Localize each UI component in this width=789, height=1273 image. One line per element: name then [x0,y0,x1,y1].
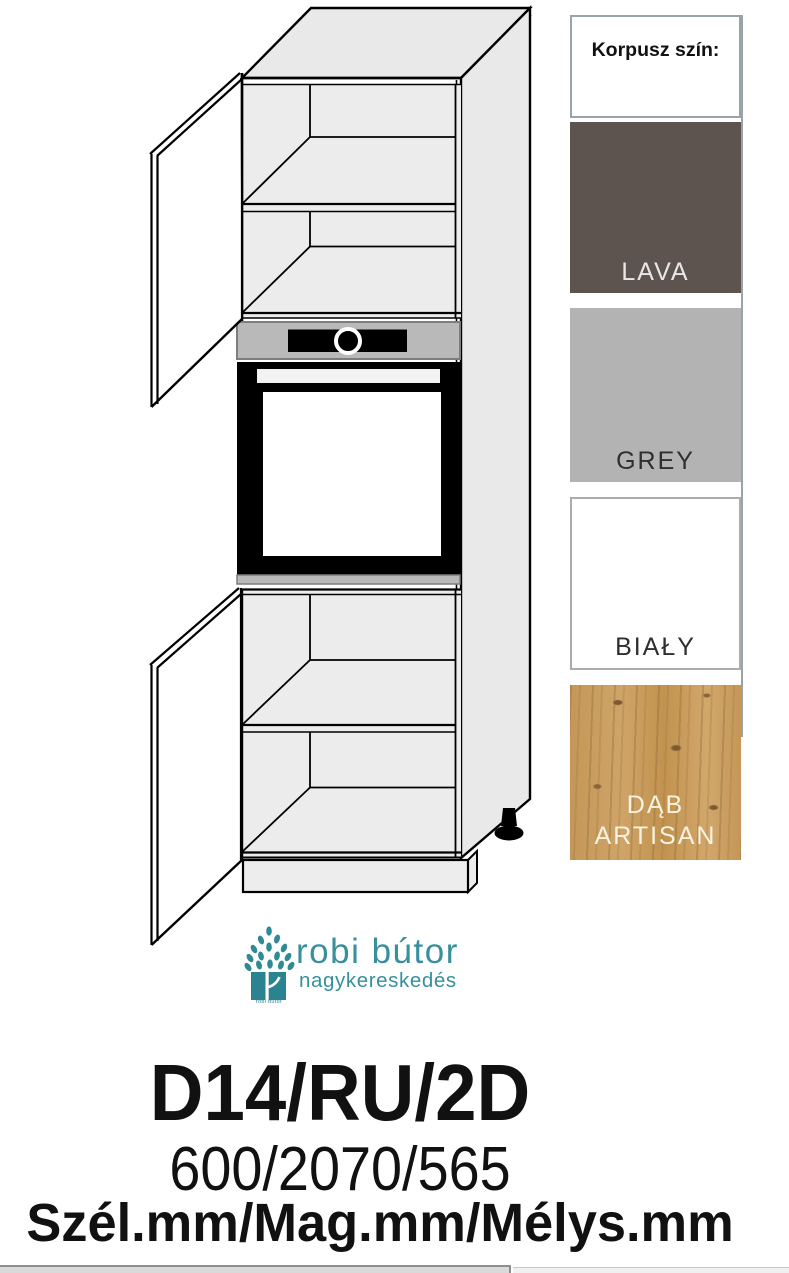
logo-brand-text: robi bútor [296,934,459,969]
oven-lower-trim [237,575,460,584]
logo-icon-caption: robi bútor [249,1000,289,1006]
upper-door [150,73,242,407]
panel-right-border [741,15,743,737]
swatch-label: LAVA [570,257,741,288]
logo-tree-icon [243,926,296,1000]
swatch-panel-title: Korpusz szín: [592,39,720,62]
scrollbar-track [513,1267,789,1273]
product-dimensions-label: Szél.mm/Mag.mm/Mélys.mm [11,1196,748,1250]
swatch-bialy: BIAŁY [570,497,741,670]
swatch-lava: LAVA [570,122,741,293]
oven-knob-icon [336,329,360,353]
swatch-panel-header: Korpusz szín: [570,15,741,118]
swatch-label: DĄB ARTISAN [570,790,741,853]
cabinet-side-panel [461,8,530,858]
oven-handle [257,369,440,383]
swatch-dab-artisan: DĄB ARTISAN [570,685,741,860]
swatch-label: GREY [570,446,741,477]
lower-door [150,588,242,945]
upper-compartments [242,73,461,322]
color-swatch-panel: Korpusz szín: LAVA GREY BIAŁY DĄB ARTISA… [570,15,741,860]
product-code: D14/RU/2D [24,1053,656,1133]
product-dimensions: 600/2070/565 [34,1139,646,1201]
swatch-label: BIAŁY [572,632,739,663]
oven-window [263,392,441,556]
horizontal-scrollbar[interactable] [0,1265,511,1273]
swatch-grey: GREY [570,308,741,482]
logo-subtitle-text: nagykereskedés [299,971,457,992]
lower-compartments [242,589,461,862]
